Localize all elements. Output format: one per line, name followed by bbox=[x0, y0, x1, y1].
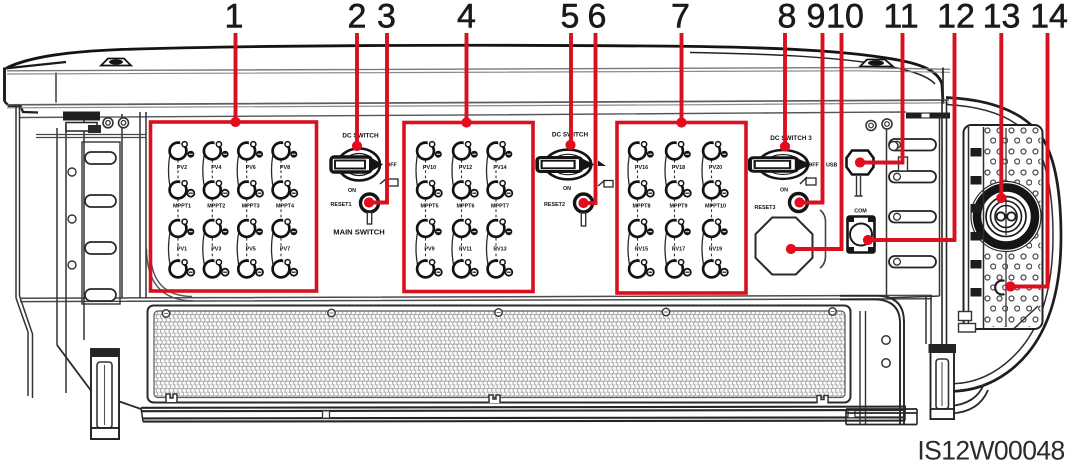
svg-text:PV15: PV15 bbox=[635, 247, 648, 253]
svg-text:12: 12 bbox=[937, 0, 975, 36]
svg-text:OFF: OFF bbox=[808, 163, 819, 169]
svg-text:9: 9 bbox=[807, 0, 826, 36]
svg-text:1: 1 bbox=[225, 0, 244, 36]
svg-text:PV1: PV1 bbox=[177, 247, 187, 253]
svg-text:PV14: PV14 bbox=[493, 165, 506, 171]
svg-text:COM: COM bbox=[854, 209, 867, 215]
svg-text:PV16: PV16 bbox=[635, 165, 648, 171]
svg-text:USB: USB bbox=[826, 163, 837, 169]
svg-text:MPPT8: MPPT8 bbox=[633, 204, 651, 210]
svg-text:3: 3 bbox=[377, 0, 396, 36]
svg-text:PV19: PV19 bbox=[709, 247, 722, 253]
svg-text:MPPT10: MPPT10 bbox=[705, 204, 726, 210]
svg-text:MPPT1: MPPT1 bbox=[173, 204, 191, 210]
svg-text:MAIN SWITCH: MAIN SWITCH bbox=[333, 228, 384, 237]
svg-text:RESET3: RESET3 bbox=[755, 205, 776, 211]
svg-text:2: 2 bbox=[348, 0, 367, 36]
svg-text:PV6: PV6 bbox=[246, 165, 256, 171]
svg-text:DC SWITCH 3: DC SWITCH 3 bbox=[770, 135, 812, 142]
svg-text:PV11: PV11 bbox=[459, 247, 472, 253]
svg-text:PV2: PV2 bbox=[177, 165, 187, 171]
svg-text:PV13: PV13 bbox=[493, 247, 506, 253]
svg-text:PV5: PV5 bbox=[246, 247, 256, 253]
svg-text:RESET1: RESET1 bbox=[331, 202, 352, 208]
svg-text:IS12W00048: IS12W00048 bbox=[917, 436, 1064, 465]
svg-text:ON: ON bbox=[348, 188, 356, 194]
svg-text:PV7: PV7 bbox=[280, 247, 290, 253]
svg-text:7: 7 bbox=[671, 0, 690, 36]
svg-text:PV8: PV8 bbox=[280, 165, 290, 171]
svg-text:10: 10 bbox=[826, 0, 864, 36]
svg-text:MPPT6: MPPT6 bbox=[457, 204, 475, 210]
svg-text:PV12: PV12 bbox=[459, 165, 472, 171]
svg-text:14: 14 bbox=[1030, 0, 1068, 36]
svg-text:PV20: PV20 bbox=[709, 165, 722, 171]
svg-text:PV3: PV3 bbox=[211, 247, 221, 253]
svg-text:11: 11 bbox=[883, 0, 918, 36]
svg-text:MPPT3: MPPT3 bbox=[242, 204, 260, 210]
svg-text:PV18: PV18 bbox=[672, 165, 685, 171]
svg-text:8: 8 bbox=[778, 0, 797, 36]
svg-text:MPPT2: MPPT2 bbox=[207, 204, 225, 210]
svg-text:PV17: PV17 bbox=[672, 247, 685, 253]
svg-text:MPPT5: MPPT5 bbox=[421, 204, 439, 210]
svg-text:PV4: PV4 bbox=[211, 165, 221, 171]
svg-text:MPPT4: MPPT4 bbox=[276, 204, 294, 210]
svg-text:ON: ON bbox=[780, 188, 788, 194]
svg-text:13: 13 bbox=[983, 0, 1021, 36]
svg-text:4: 4 bbox=[457, 0, 476, 36]
svg-text:ON: ON bbox=[563, 186, 571, 192]
svg-text:5: 5 bbox=[561, 0, 580, 36]
svg-text:MPPT7: MPPT7 bbox=[491, 204, 509, 210]
svg-text:RESET2: RESET2 bbox=[544, 202, 565, 208]
svg-text:PV10: PV10 bbox=[423, 165, 436, 171]
svg-text:PV9: PV9 bbox=[424, 247, 434, 253]
svg-text:DC SWITCH: DC SWITCH bbox=[342, 133, 379, 140]
svg-text:MPPT9: MPPT9 bbox=[670, 204, 688, 210]
svg-text:6: 6 bbox=[588, 0, 607, 36]
